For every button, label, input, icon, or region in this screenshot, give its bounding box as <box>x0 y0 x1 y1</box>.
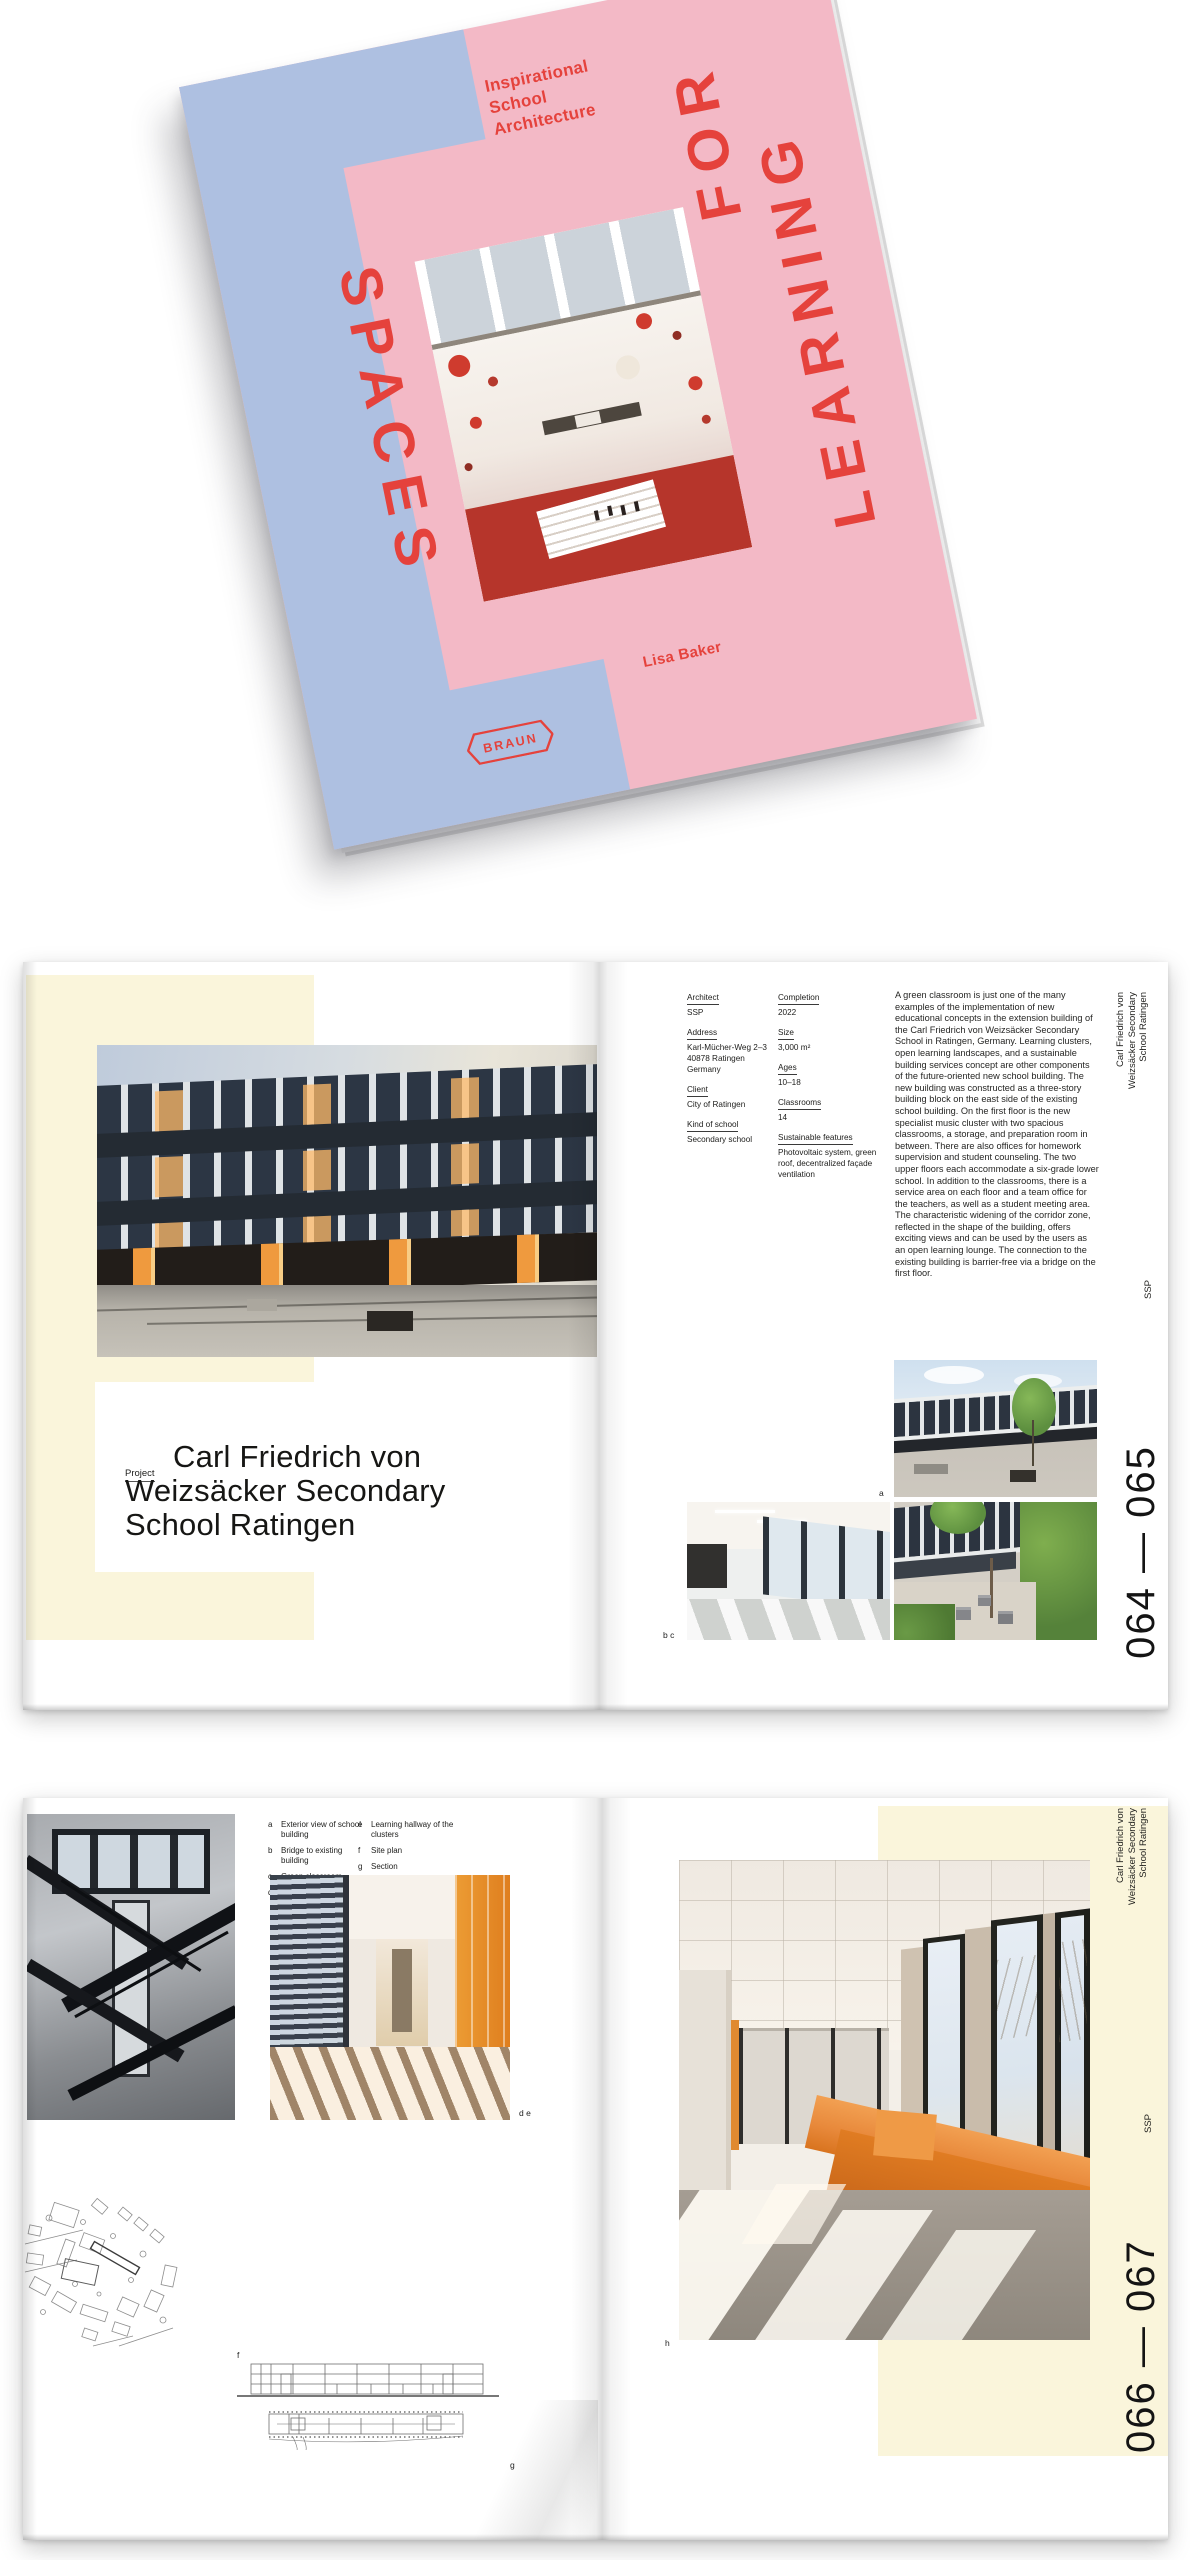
project-meta-column-1: ArchitectSSP AddressKarl-Mücher-Weg 2–3 … <box>687 992 773 1154</box>
photo-label-a: a <box>879 1488 884 1498</box>
project-title: Carl Friedrich von Weizsäcker Secondary … <box>125 1440 445 1542</box>
page-folio-066-067: 066 — 067 <box>1119 2268 1164 2453</box>
cover-title-for: FOR <box>663 55 752 225</box>
sidebar-project-title: Carl Friedrich von Weizsäcker Secondary … <box>1115 1808 1150 1940</box>
page-curl-shade <box>383 2400 598 2540</box>
page-gutter <box>568 962 628 1710</box>
svg-text:BRAUN: BRAUN <box>482 731 539 756</box>
photo-label-bc: b c <box>663 1630 674 1640</box>
spread-pages-066-067: aExterior view of school building bBridg… <box>23 1798 1168 2540</box>
title-line-3: School Ratingen <box>125 1508 445 1542</box>
project-meta-column-2: Completion2022 Size3,000 m² Ages10–18 Cl… <box>778 992 890 1189</box>
title-line-1: Carl Friedrich von <box>125 1440 445 1474</box>
photo-b-glass-corridor <box>687 1502 890 1640</box>
photo-a-facade-day <box>894 1360 1097 1497</box>
cover-tagline: Inspirational School Architecture <box>483 55 599 141</box>
photo-d-stairwell <box>27 1814 235 2120</box>
photo-exterior-dusk <box>97 1045 597 1357</box>
photo-c-courtyard <box>894 1502 1097 1640</box>
photo-label-h: h <box>665 2338 670 2348</box>
photo-label-de: d e <box>519 2108 531 2118</box>
drawing-elevation <box>237 2358 499 2406</box>
project-title-block: Project Carl Friedrich von Weizsäcker Se… <box>95 1382 597 1572</box>
photo-h-hallway-seating <box>679 1860 1090 2340</box>
cover-title-learning: LEARNING <box>748 122 886 532</box>
drawing-site-plan <box>23 2196 187 2352</box>
page-folio-064-065: 064 — 065 <box>1119 1440 1164 1664</box>
sidebar-project-title: Carl Friedrich von Weizsäcker Secondary … <box>1115 992 1150 1124</box>
sidebar-architect: SSP <box>1143 2114 1154 2158</box>
photo-e-learning-hallway <box>270 1875 510 2120</box>
cover-photo-atrium <box>415 207 753 602</box>
spread-pages-064-065: Project Carl Friedrich von Weizsäcker Se… <box>23 962 1168 1710</box>
book-showcase-page: { "cover": { "tagline": "Inspirational\n… <box>0 0 1190 2560</box>
sidebar-architect: SSP <box>1143 1280 1154 1324</box>
book-cover: Inspirational School Architecture SPACES… <box>179 0 977 850</box>
title-line-2: Weizsäcker Secondary <box>125 1474 445 1508</box>
cover-author: Lisa Baker <box>641 638 723 671</box>
project-description: A green classroom is just one of the man… <box>895 990 1099 1280</box>
